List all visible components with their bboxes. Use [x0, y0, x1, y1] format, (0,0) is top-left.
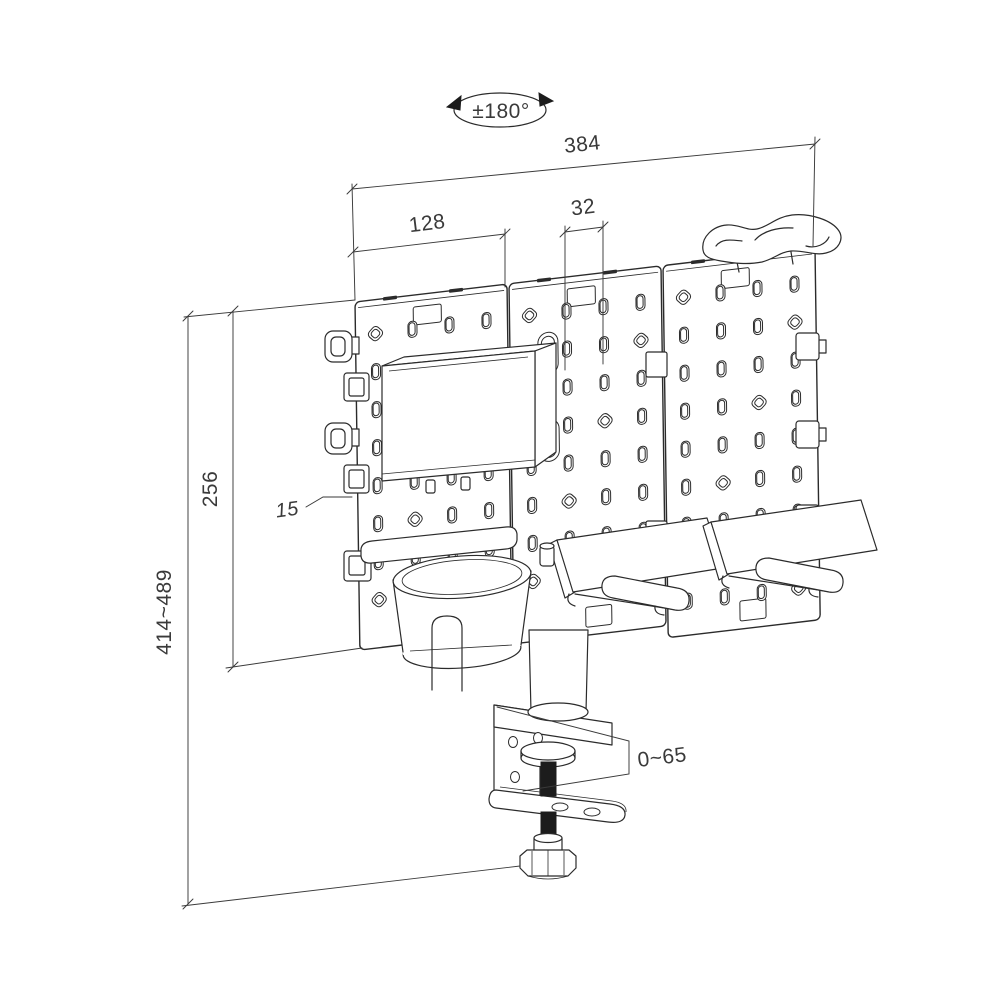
slot-hole: [716, 322, 725, 339]
mount-pole: [528, 630, 588, 721]
technical-drawing-page: 384 128 32 256 414~489 15 0~65 ±180°: [0, 0, 1000, 1000]
slot-hole: [372, 401, 381, 418]
slot-hole: [528, 535, 537, 552]
peg-tab-2: [344, 465, 369, 493]
slot-hole: [528, 497, 537, 514]
slot-hole: [408, 321, 417, 338]
cable-clip-bottom: [325, 423, 359, 454]
slot-hole: [562, 303, 571, 320]
slot-hole: [637, 370, 646, 387]
rotation-arrow-left-icon: [447, 96, 461, 110]
junction-block-2: [646, 352, 667, 377]
slot-hole: [682, 479, 691, 496]
dim-panel-thickness: 15: [274, 497, 300, 522]
slot-hole: [373, 477, 382, 494]
slot-hole: [374, 515, 383, 532]
slot-hole: [680, 403, 689, 420]
slot-hole: [756, 470, 765, 487]
screw-rod-upper: [541, 762, 556, 796]
slot-hole: [448, 506, 457, 523]
slot-hole: [639, 484, 648, 501]
slot-hole: [754, 356, 763, 373]
dim-left-panel-width: 128: [408, 210, 447, 237]
rotation-indicator: ±180°: [447, 93, 553, 127]
slot-hole: [564, 455, 573, 472]
slot-hole: [680, 365, 689, 382]
slot-hole: [757, 584, 766, 601]
dim-overall-height: 414~489: [153, 569, 176, 655]
slot-hole: [563, 379, 572, 396]
right-edge-block-1: [796, 333, 826, 360]
slot-hole: [602, 488, 611, 505]
slot-hole: [755, 432, 764, 449]
peg-tab-1: [344, 373, 369, 401]
slot-hole: [485, 502, 494, 519]
slot-hole: [790, 276, 799, 293]
slot-hole: [720, 588, 729, 605]
slot-hole: [372, 439, 381, 456]
slot-hole: [636, 294, 645, 311]
right-edge-block-2: [796, 421, 826, 448]
slot-hole: [601, 450, 610, 467]
rotation-arrow-right-icon: [539, 93, 553, 106]
dim-panel-height: 256: [199, 471, 222, 508]
rotation-label: ±180°: [472, 100, 529, 123]
slot-hole: [482, 312, 491, 329]
slot-hole: [637, 408, 646, 425]
slot-hole: [563, 417, 572, 434]
slot-hole: [638, 446, 647, 463]
slot-hole: [717, 398, 726, 415]
slot-hole: [600, 374, 609, 391]
dim-clamp-range: 0~65: [636, 743, 688, 772]
slot-hole: [599, 336, 608, 353]
dim-total-width: 384: [563, 131, 602, 158]
slot-hole: [793, 466, 802, 483]
slot-hole: [753, 280, 762, 297]
dim-hole-pitch: 32: [570, 195, 597, 221]
slot-hole: [791, 390, 800, 407]
slot-hole: [562, 341, 571, 358]
slot-hole: [753, 318, 762, 335]
slot-hole: [718, 436, 727, 453]
slot-hole: [681, 441, 690, 458]
cable-clip-top: [325, 331, 359, 362]
slot-hole: [445, 316, 454, 333]
slot-hole: [599, 298, 608, 315]
slot-hole: [371, 363, 380, 380]
slot-hole: [679, 327, 688, 344]
slot-hole: [716, 284, 725, 301]
slot-hole: [717, 360, 726, 377]
